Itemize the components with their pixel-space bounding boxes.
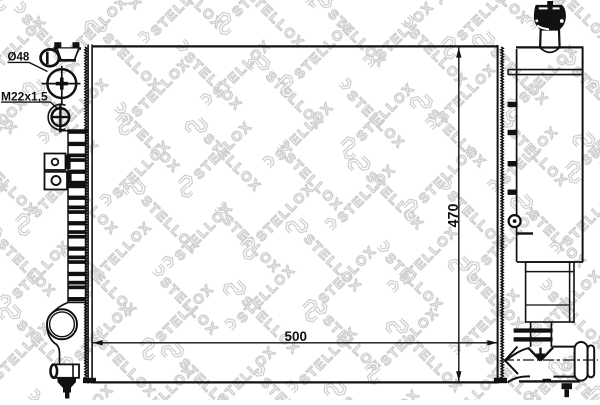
svg-text:470: 470 (446, 203, 462, 227)
svg-text:500: 500 (285, 329, 308, 344)
